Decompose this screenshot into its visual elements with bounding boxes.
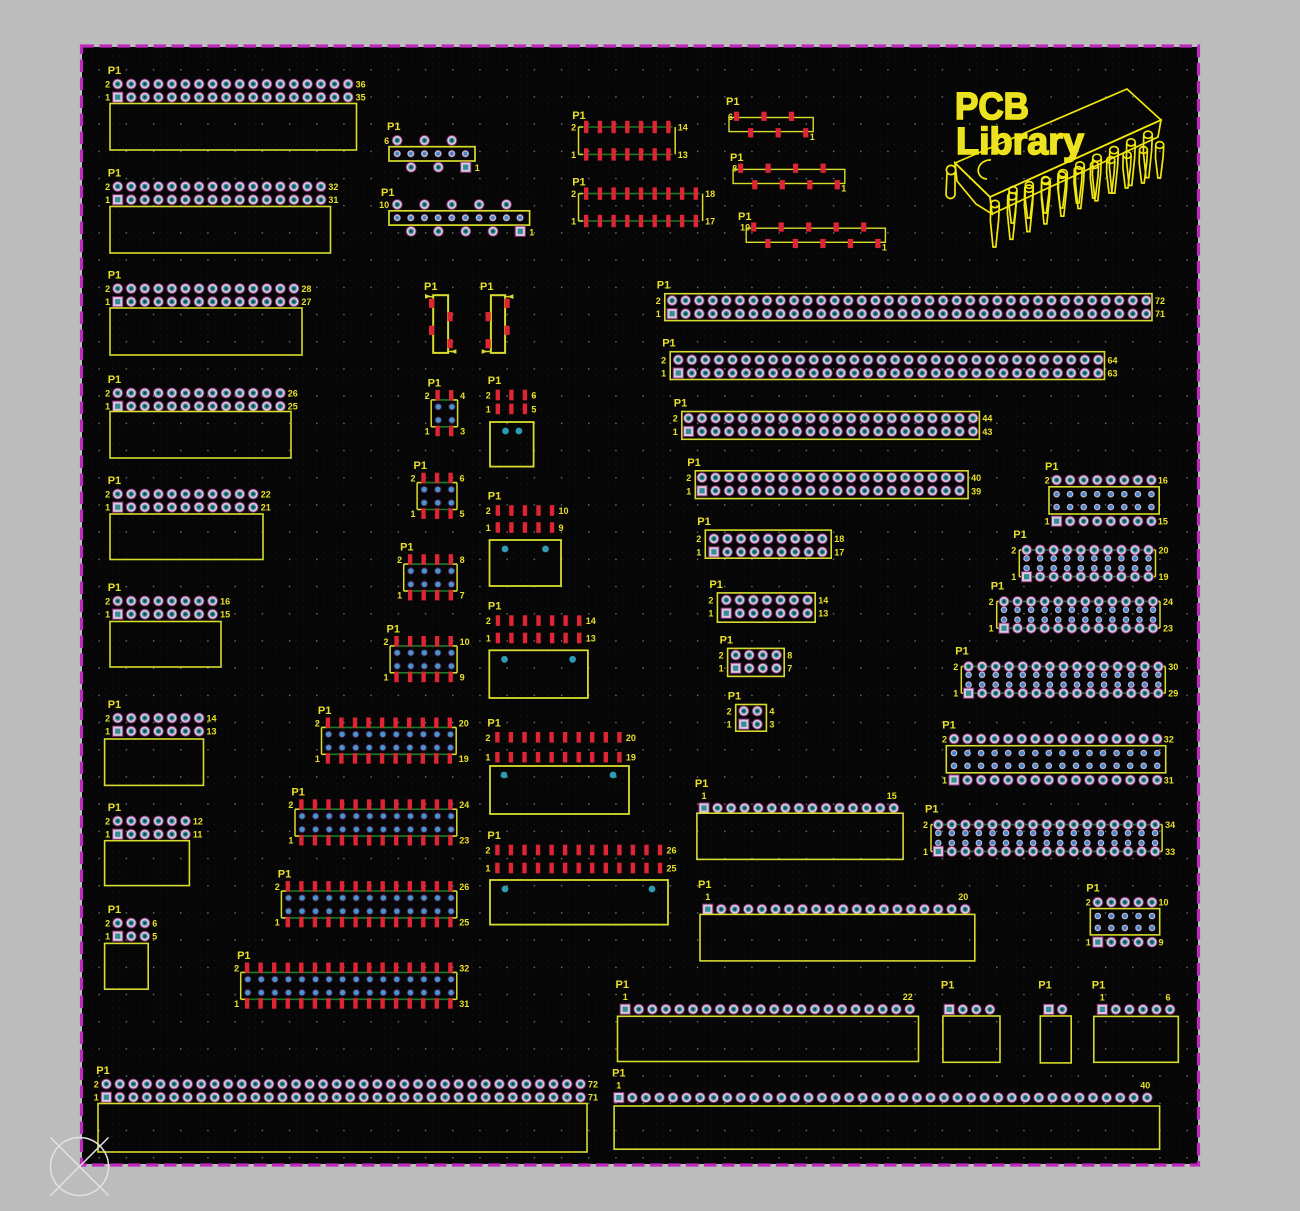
svg-text:15: 15 (887, 791, 897, 801)
svg-text:9: 9 (559, 523, 564, 533)
svg-text:2: 2 (105, 389, 110, 399)
svg-text:P1: P1 (108, 582, 121, 594)
svg-text:40: 40 (1140, 1081, 1150, 1091)
svg-text:2: 2 (397, 555, 402, 565)
svg-text:P1: P1 (108, 65, 121, 77)
svg-text:33: 33 (1165, 847, 1175, 857)
svg-text:1: 1 (1100, 992, 1105, 1002)
svg-text:16: 16 (220, 597, 230, 607)
svg-text:1: 1 (105, 830, 110, 840)
svg-text:15: 15 (1158, 517, 1168, 527)
svg-text:23: 23 (459, 836, 469, 846)
svg-text:1: 1 (275, 918, 280, 928)
svg-text:P1: P1 (381, 187, 394, 199)
svg-text:4: 4 (460, 391, 465, 401)
svg-text:2: 2 (105, 182, 110, 192)
svg-text:2: 2 (1011, 545, 1016, 555)
svg-text:1: 1 (105, 93, 110, 103)
svg-text:2: 2 (105, 597, 110, 607)
svg-text:P1: P1 (1086, 883, 1099, 895)
svg-text:26: 26 (667, 846, 677, 856)
svg-text:35: 35 (356, 93, 366, 103)
svg-text:10: 10 (460, 637, 470, 647)
svg-text:1: 1 (410, 509, 415, 519)
svg-text:24: 24 (459, 800, 469, 810)
svg-text:2: 2 (105, 714, 110, 724)
svg-text:2: 2 (1045, 476, 1050, 486)
svg-text:P1: P1 (1092, 979, 1105, 991)
svg-text:2: 2 (727, 707, 732, 717)
svg-text:Library: Library (956, 121, 1084, 163)
svg-text:P1: P1 (318, 705, 331, 717)
svg-text:1: 1 (719, 664, 724, 674)
svg-text:2: 2 (942, 734, 947, 744)
svg-text:19: 19 (1159, 572, 1169, 582)
svg-text:P1: P1 (674, 398, 687, 410)
svg-text:6: 6 (531, 391, 536, 401)
svg-text:P1: P1 (487, 830, 500, 842)
svg-text:14: 14 (586, 616, 596, 626)
svg-text:1: 1 (475, 163, 480, 173)
svg-text:P1: P1 (428, 377, 441, 389)
svg-text:17: 17 (834, 547, 844, 557)
svg-text:2: 2 (234, 963, 239, 973)
svg-text:P1: P1 (709, 579, 722, 591)
svg-text:1: 1 (727, 720, 732, 730)
svg-text:P1: P1 (738, 211, 751, 223)
svg-text:3: 3 (769, 720, 774, 730)
svg-text:2: 2 (94, 1080, 99, 1090)
svg-text:22: 22 (903, 992, 913, 1002)
svg-text:1: 1 (105, 297, 110, 307)
svg-text:20: 20 (626, 733, 636, 743)
svg-text:P1: P1 (697, 516, 710, 528)
svg-text:P1: P1 (414, 460, 427, 472)
svg-text:22: 22 (261, 490, 271, 500)
svg-text:1: 1 (105, 402, 110, 412)
svg-text:P1: P1 (941, 979, 954, 991)
svg-text:P1: P1 (616, 979, 629, 991)
svg-text:3: 3 (460, 426, 465, 436)
svg-text:71: 71 (1155, 309, 1165, 319)
svg-text:P1: P1 (1038, 979, 1051, 991)
svg-text:P1: P1 (424, 281, 437, 293)
svg-text:P1: P1 (108, 699, 121, 711)
svg-text:5: 5 (460, 509, 465, 519)
svg-text:6: 6 (384, 136, 389, 146)
svg-text:P1: P1 (108, 168, 121, 180)
svg-text:1: 1 (105, 727, 110, 737)
svg-text:P1: P1 (698, 879, 711, 891)
svg-text:2: 2 (673, 414, 678, 424)
svg-text:1: 1 (529, 227, 534, 237)
svg-text:P1: P1 (728, 691, 741, 703)
svg-text:P1: P1 (687, 457, 700, 469)
svg-text:23: 23 (1163, 624, 1173, 634)
svg-text:P1: P1 (400, 542, 413, 554)
svg-text:10: 10 (379, 200, 389, 210)
svg-text:9: 9 (1159, 938, 1164, 948)
svg-text:64: 64 (1108, 355, 1118, 365)
svg-text:P1: P1 (955, 645, 968, 657)
svg-text:1: 1 (708, 609, 713, 619)
svg-text:32: 32 (328, 182, 338, 192)
svg-text:1: 1 (571, 217, 576, 227)
svg-text:25: 25 (459, 918, 469, 928)
svg-text:1: 1 (656, 309, 661, 319)
svg-text:2: 2 (953, 662, 958, 672)
svg-text:P1: P1 (108, 475, 121, 487)
svg-text:P1: P1 (488, 375, 501, 387)
svg-text:5: 5 (152, 932, 157, 942)
svg-text:2: 2 (719, 651, 724, 661)
svg-text:P1: P1 (662, 338, 675, 350)
svg-text:6: 6 (460, 474, 465, 484)
svg-text:1: 1 (105, 195, 110, 205)
svg-text:20: 20 (1159, 545, 1169, 555)
svg-text:34: 34 (1165, 820, 1175, 830)
svg-text:1: 1 (425, 426, 430, 436)
svg-text:P1: P1 (572, 110, 585, 122)
svg-text:P1: P1 (387, 121, 400, 133)
svg-text:P1: P1 (695, 778, 708, 790)
svg-text:7: 7 (460, 591, 465, 601)
svg-text:P1: P1 (278, 868, 291, 880)
svg-text:2: 2 (315, 718, 320, 728)
svg-text:P1: P1 (387, 623, 400, 635)
svg-text:43: 43 (982, 427, 992, 437)
svg-text:P1: P1 (991, 580, 1004, 592)
svg-text:4: 4 (769, 707, 774, 717)
svg-text:2: 2 (923, 820, 928, 830)
svg-text:P1: P1 (720, 634, 733, 646)
svg-text:P1: P1 (480, 281, 493, 293)
svg-text:13: 13 (818, 609, 828, 619)
svg-text:18: 18 (705, 189, 715, 199)
svg-text:2: 2 (288, 800, 293, 810)
svg-text:10: 10 (559, 506, 569, 516)
svg-text:P1: P1 (108, 374, 121, 386)
svg-text:1: 1 (661, 369, 666, 379)
svg-text:1: 1 (882, 243, 887, 253)
svg-text:1: 1 (942, 776, 947, 786)
svg-text:2: 2 (661, 355, 666, 365)
svg-text:44: 44 (982, 414, 992, 424)
svg-text:2: 2 (486, 506, 491, 516)
svg-text:1: 1 (486, 404, 491, 414)
svg-text:1: 1 (1011, 572, 1016, 582)
svg-text:1: 1 (94, 1093, 99, 1103)
svg-text:14: 14 (207, 714, 217, 724)
svg-text:2: 2 (571, 123, 576, 133)
svg-text:32: 32 (1164, 734, 1174, 744)
svg-text:6: 6 (152, 919, 157, 929)
svg-text:2: 2 (686, 473, 691, 483)
svg-text:72: 72 (588, 1080, 598, 1090)
svg-text:1: 1 (696, 547, 701, 557)
svg-text:25: 25 (667, 864, 677, 874)
svg-text:12: 12 (193, 817, 203, 827)
svg-text:31: 31 (328, 195, 338, 205)
svg-text:P1: P1 (1013, 529, 1026, 541)
svg-text:P1: P1 (291, 787, 304, 799)
svg-text:1: 1 (701, 791, 706, 801)
svg-text:1: 1 (705, 892, 710, 902)
svg-text:P1: P1 (488, 491, 501, 503)
svg-text:2: 2 (1086, 898, 1091, 908)
svg-text:72: 72 (1155, 296, 1165, 306)
svg-text:18: 18 (834, 534, 844, 544)
svg-text:P1: P1 (108, 904, 121, 916)
svg-text:6: 6 (1165, 992, 1170, 1002)
svg-text:21: 21 (261, 503, 271, 513)
svg-text:1: 1 (623, 992, 628, 1002)
svg-text:1: 1 (105, 610, 110, 620)
svg-text:2: 2 (485, 733, 490, 743)
svg-text:P1: P1 (657, 280, 670, 292)
svg-text:7: 7 (787, 664, 792, 674)
svg-text:11: 11 (193, 830, 203, 840)
svg-text:P1: P1 (925, 804, 938, 816)
svg-text:1: 1 (315, 754, 320, 764)
svg-text:P1: P1 (487, 717, 500, 729)
svg-text:P1: P1 (572, 177, 585, 189)
svg-text:1: 1 (923, 847, 928, 857)
svg-text:1: 1 (288, 836, 293, 846)
svg-text:P1: P1 (108, 270, 121, 282)
svg-text:31: 31 (1164, 776, 1174, 786)
svg-text:1: 1 (673, 427, 678, 437)
svg-text:1: 1 (105, 503, 110, 513)
svg-text:9: 9 (460, 672, 465, 682)
svg-text:30: 30 (1168, 662, 1178, 672)
svg-text:1: 1 (105, 932, 110, 942)
svg-text:19: 19 (626, 753, 636, 763)
svg-text:1: 1 (841, 184, 846, 194)
svg-text:15: 15 (220, 610, 230, 620)
svg-text:2: 2 (425, 391, 430, 401)
svg-text:2: 2 (571, 189, 576, 199)
svg-text:1: 1 (485, 864, 490, 874)
svg-text:2: 2 (696, 534, 701, 544)
svg-text:1: 1 (486, 523, 491, 533)
svg-text:2: 2 (656, 296, 661, 306)
svg-text:13: 13 (586, 634, 596, 644)
svg-text:14: 14 (678, 123, 688, 133)
svg-text:1: 1 (1045, 517, 1050, 527)
svg-text:63: 63 (1108, 369, 1118, 379)
svg-text:P1: P1 (726, 96, 739, 108)
svg-text:1: 1 (989, 624, 994, 634)
svg-text:8: 8 (460, 555, 465, 565)
svg-text:29: 29 (1168, 689, 1178, 699)
svg-text:2: 2 (486, 616, 491, 626)
svg-text:2: 2 (105, 80, 110, 90)
svg-text:1: 1 (397, 591, 402, 601)
svg-text:19: 19 (459, 754, 469, 764)
svg-text:2: 2 (989, 597, 994, 607)
svg-text:2: 2 (410, 474, 415, 484)
svg-text:20: 20 (459, 718, 469, 728)
svg-text:2: 2 (105, 817, 110, 827)
svg-text:1: 1 (616, 1081, 621, 1091)
svg-text:2: 2 (708, 596, 713, 606)
svg-text:8: 8 (787, 651, 792, 661)
svg-text:10: 10 (1159, 898, 1169, 908)
svg-text:26: 26 (459, 882, 469, 892)
svg-text:P1: P1 (488, 601, 501, 613)
svg-text:2: 2 (105, 284, 110, 294)
svg-text:13: 13 (678, 150, 688, 160)
svg-text:2: 2 (105, 919, 110, 929)
svg-text:1: 1 (810, 132, 815, 142)
svg-text:P1: P1 (1045, 461, 1058, 473)
svg-text:P1: P1 (730, 152, 743, 164)
svg-text:P1: P1 (612, 1068, 625, 1080)
svg-text:2: 2 (486, 391, 491, 401)
svg-text:2: 2 (275, 882, 280, 892)
svg-text:P1: P1 (942, 720, 955, 732)
svg-text:40: 40 (971, 473, 981, 483)
svg-text:1: 1 (686, 486, 691, 496)
svg-text:1: 1 (383, 672, 388, 682)
svg-text:32: 32 (459, 963, 469, 973)
svg-text:13: 13 (207, 727, 217, 737)
svg-text:36: 36 (356, 80, 366, 90)
svg-text:5: 5 (531, 404, 536, 414)
svg-text:1: 1 (486, 634, 491, 644)
svg-text:31: 31 (459, 999, 469, 1009)
svg-text:P1: P1 (108, 802, 121, 814)
svg-text:28: 28 (301, 284, 311, 294)
svg-text:1: 1 (485, 753, 490, 763)
svg-text:16: 16 (1158, 476, 1168, 486)
svg-text:17: 17 (705, 217, 715, 227)
svg-text:1: 1 (234, 999, 239, 1009)
svg-text:1: 1 (953, 689, 958, 699)
svg-text:2: 2 (105, 490, 110, 500)
svg-text:1: 1 (1086, 938, 1091, 948)
svg-text:2: 2 (383, 637, 388, 647)
svg-text:26: 26 (288, 389, 298, 399)
svg-text:14: 14 (818, 596, 828, 606)
svg-text:2: 2 (485, 846, 490, 856)
svg-text:1: 1 (571, 150, 576, 160)
svg-text:25: 25 (288, 402, 298, 412)
svg-text:39: 39 (971, 486, 981, 496)
svg-text:P1: P1 (96, 1065, 109, 1077)
svg-text:P1: P1 (237, 950, 250, 962)
svg-text:24: 24 (1163, 597, 1173, 607)
svg-text:71: 71 (588, 1093, 598, 1103)
svg-text:20: 20 (958, 892, 968, 902)
svg-text:27: 27 (301, 297, 311, 307)
